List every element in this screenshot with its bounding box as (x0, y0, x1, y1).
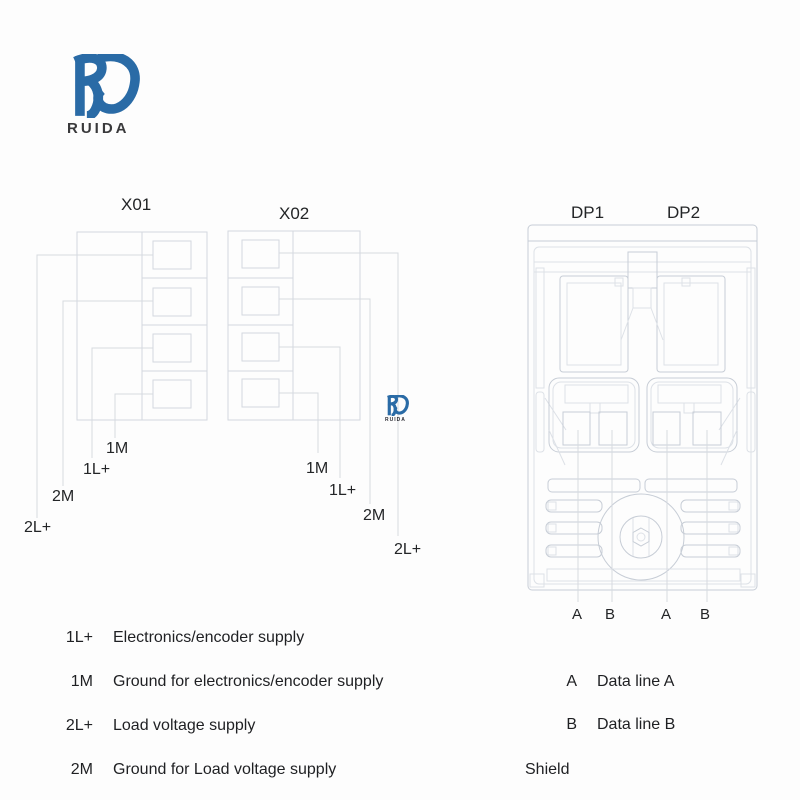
dp2-pin-label-a: A (661, 606, 671, 623)
dp-pin-leader-lines (578, 430, 707, 602)
legend-desc: Ground for electronics/encoder supply (113, 672, 383, 692)
legend-shield-label: Shield (525, 760, 569, 780)
legend-term: 2L+ (33, 716, 93, 736)
legend-term: 1M (33, 672, 93, 692)
vent-slots-drawing (546, 500, 740, 557)
legend-term: 1L+ (33, 628, 93, 648)
legend-desc: Data line B (597, 715, 675, 735)
rd-monogram-icon (386, 395, 409, 416)
legend-row-1m: 1M Ground for electronics/encoder supply (33, 672, 383, 692)
x02-pin-label-1m: 1M (306, 460, 328, 478)
dp2-title: DP2 (667, 203, 700, 223)
dp1-pin-label-b: B (605, 606, 615, 623)
x01-pin-label-1l: 1L+ (83, 461, 110, 479)
watermark-brand-name: RUIDA (385, 417, 406, 423)
rotary-selector-drawing (598, 494, 684, 580)
legend-row-a: A Data line A (507, 672, 674, 692)
legend-desc: Ground for Load voltage supply (113, 760, 336, 780)
x01-terminal-drawing (37, 232, 207, 518)
dp2-pin-label-b: B (700, 606, 710, 623)
legend-desc: Load voltage supply (113, 716, 255, 736)
x01-pin-label-2l: 2L+ (24, 519, 51, 537)
x02-pin-label-2m: 2M (363, 507, 385, 525)
dp-module-drawing (528, 225, 757, 590)
x01-title: X01 (121, 195, 151, 215)
legend-row-b: B Data line B (507, 715, 675, 735)
x02-pin-label-2l: 2L+ (394, 541, 421, 559)
legend-row-2l: 2L+ Load voltage supply (33, 716, 255, 736)
x02-terminal-drawing (228, 231, 398, 536)
page: RUIDA RUIDA X01 X02 DP1 DP2 1M 1L+ 2M 2L… (0, 0, 800, 800)
watermark-logo: RUIDA (386, 395, 420, 425)
dp1-title: DP1 (571, 203, 604, 223)
dp2-socket-drawing (645, 378, 737, 492)
legend-term: 2M (33, 760, 93, 780)
x02-title: X02 (279, 204, 309, 224)
rd-monogram-icon (70, 54, 140, 118)
legend-desc: Data line A (597, 672, 674, 692)
legend-desc: Electronics/encoder supply (113, 628, 304, 648)
brand-logo: RUIDA (70, 54, 190, 144)
legend-term: B (507, 715, 577, 735)
legend-term: A (507, 672, 577, 692)
legend-row-2m: 2M Ground for Load voltage supply (33, 760, 336, 780)
dp1-pin-label-a: A (572, 606, 582, 623)
legend-row-1l: 1L+ Electronics/encoder supply (33, 628, 304, 648)
x02-pin-label-1l: 1L+ (329, 482, 356, 500)
x01-pin-label-2m: 2M (52, 488, 74, 506)
dp1-socket-drawing (548, 378, 640, 492)
brand-name: RUIDA (67, 120, 130, 137)
x01-pin-label-1m: 1M (106, 440, 128, 458)
